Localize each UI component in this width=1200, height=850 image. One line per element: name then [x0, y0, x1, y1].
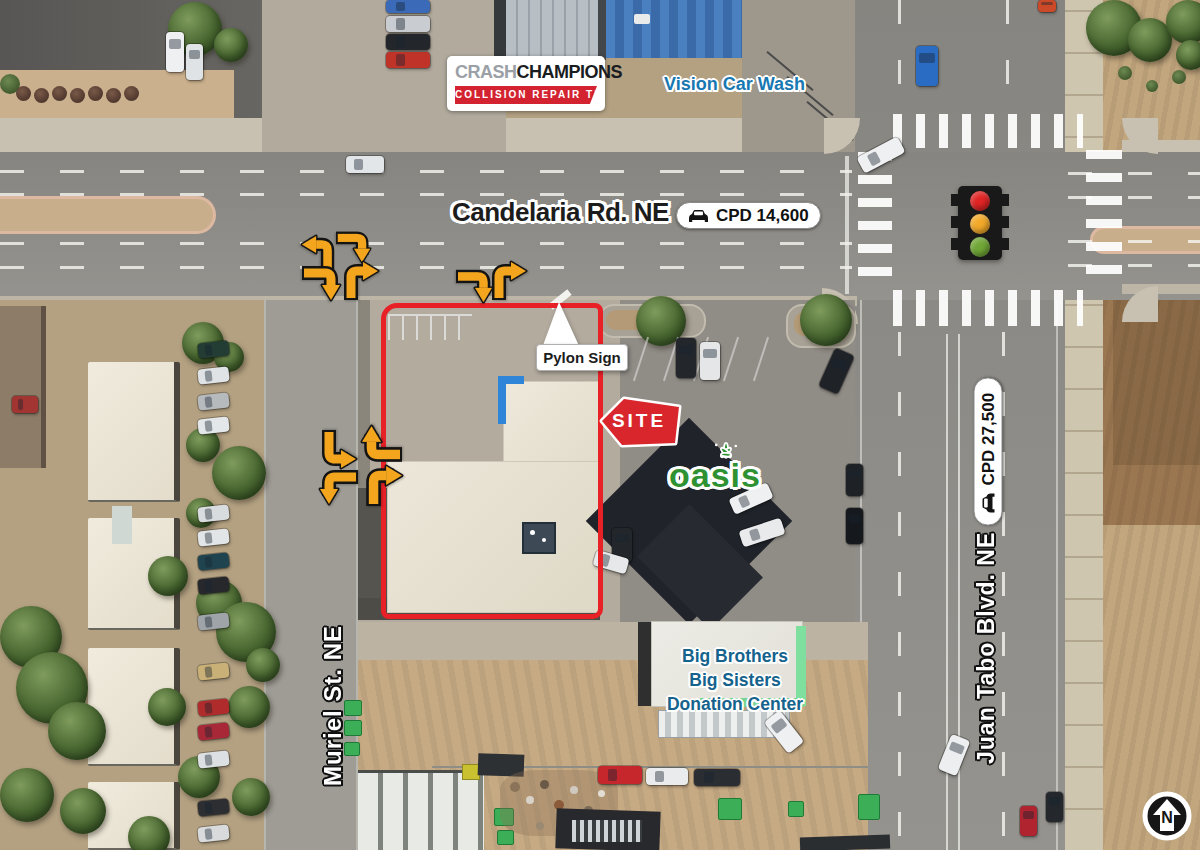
pylon-pointer: [540, 302, 584, 348]
traffic-light-green: [970, 237, 990, 257]
bush: [52, 86, 67, 101]
crosswalk-east: [1086, 150, 1122, 284]
bbbs-line3: Donation Center: [645, 692, 825, 716]
tree: [800, 294, 852, 346]
car: [197, 366, 229, 384]
turn-arrow-icon: [360, 424, 402, 466]
tree: [148, 688, 186, 726]
tree: [228, 686, 270, 728]
car: [197, 504, 229, 522]
crash-champions-wordmark: CRASHCHAMPIONS: [455, 62, 597, 83]
bush: [34, 88, 49, 103]
muriel-street-label: Muriel St. NE: [312, 614, 354, 796]
bbbs-line1: Big Brothers: [645, 644, 825, 668]
bush: [106, 88, 121, 103]
turn-arrow-icon: [336, 228, 372, 264]
car: [12, 396, 38, 413]
juan-tabo-label: Juan Tabo Blvd. NE: [962, 545, 1010, 750]
car: [676, 338, 696, 378]
candelaria-road-label: Candelaria Rd. NE: [452, 197, 669, 228]
car: [197, 416, 229, 434]
debris: [510, 782, 520, 792]
car: [386, 0, 430, 13]
lane-marking: [0, 170, 852, 173]
tree: [48, 702, 106, 760]
car: [197, 552, 229, 570]
blue-roof-building: [606, 0, 742, 58]
truck-dark: [800, 834, 890, 850]
candelaria-cpd-value: CPD 14,600: [716, 206, 809, 226]
trailer-panel: [572, 820, 642, 842]
traffic-light-tabs: [951, 194, 959, 206]
bush: [124, 86, 139, 101]
car: [197, 612, 229, 630]
traffic-light-icon: [958, 186, 1002, 260]
roof-vent: [634, 14, 650, 24]
bush: [1146, 80, 1158, 92]
car: [700, 342, 720, 380]
tree: [148, 556, 188, 596]
tree: [246, 648, 280, 682]
crash-word: CRASH: [455, 62, 517, 82]
edge-line: [1056, 300, 1058, 850]
car: [646, 768, 688, 785]
juan-tabo-cpd-value: CPD 27,500: [978, 393, 998, 486]
turn-arrow-icon: [340, 260, 380, 300]
bush: [1118, 66, 1132, 80]
car: [197, 576, 229, 594]
tree: [214, 28, 248, 62]
car: [386, 52, 430, 68]
car: [346, 156, 384, 173]
car: [186, 44, 203, 80]
lane-marking: [0, 266, 852, 269]
aerial-site-map: CRASHCHAMPIONS COLLISION REPAIR TEAM Vis…: [0, 0, 1200, 850]
lane-marking: [898, 0, 901, 112]
building-gap: [598, 0, 606, 60]
bush: [88, 86, 103, 101]
candelaria-traffic-count: CPD 14,600: [676, 202, 821, 229]
dumpster: [788, 801, 804, 817]
traffic-light-red: [970, 191, 990, 211]
car: [197, 698, 229, 716]
car-icon: [688, 209, 709, 223]
dumpster: [858, 794, 880, 820]
bush: [16, 86, 31, 101]
dumpster: [718, 798, 742, 820]
pylon-sign-label: Pylon Sign: [536, 344, 628, 371]
car: [197, 750, 229, 768]
crash-champions-logo: CRASHCHAMPIONS COLLISION REPAIR TEAM: [447, 56, 605, 111]
lane-marking: [0, 242, 852, 245]
car: [197, 392, 229, 410]
tree: [1176, 40, 1200, 70]
juan-tabo-traffic-count: CPD 27,500: [974, 378, 1003, 526]
car: [598, 766, 642, 784]
center-line: [958, 334, 960, 850]
car: [846, 508, 863, 544]
turn-arrow-icon: [318, 430, 358, 470]
car: [1046, 792, 1063, 822]
pylon-sign-text: Pylon Sign: [543, 349, 621, 366]
car: [916, 46, 938, 86]
lane-marking: [898, 332, 901, 850]
crosswalk-west: [858, 152, 892, 288]
juan-tabo-traffic-count-wrap: CPD 27,500: [974, 402, 1001, 526]
debris: [540, 780, 549, 789]
car: [694, 769, 740, 786]
tree: [212, 446, 266, 500]
car: [197, 340, 229, 358]
champions-word: CHAMPIONS: [517, 62, 623, 82]
apartment-building: [88, 362, 180, 502]
tree: [0, 768, 54, 822]
stop-line: [845, 156, 849, 294]
vision-car-wash-label: Vision Car Wash: [664, 74, 805, 95]
crosswalk-south: [893, 290, 1083, 326]
turn-arrow-icon: [488, 260, 528, 300]
debris: [598, 790, 605, 797]
lane-marking: [0, 193, 852, 196]
tree: [232, 778, 270, 816]
bush: [70, 88, 85, 103]
site-flag-text: SITE: [596, 410, 682, 432]
north-compass-icon: N: [1141, 790, 1193, 842]
car: [197, 528, 229, 546]
crash-tagline-ribbon: COLLISION REPAIR TEAM: [455, 86, 597, 104]
car: [197, 662, 229, 680]
oasis-logo-text: oasis: [650, 458, 780, 492]
car: [1038, 0, 1056, 12]
sidewalk-segment: [1122, 284, 1200, 294]
dumpster: [497, 830, 514, 845]
tree: [60, 788, 106, 834]
shed: [112, 506, 132, 544]
lane-marking: [1006, 0, 1009, 112]
car: [166, 32, 184, 72]
big-brothers-label: Big Brothers Big Sisters Donation Center: [645, 644, 825, 716]
debris: [570, 786, 578, 794]
tree: [128, 816, 170, 850]
car: [197, 722, 229, 740]
car: [386, 16, 430, 32]
turn-arrow-icon: [362, 464, 404, 506]
turn-arrow-icon: [302, 262, 342, 302]
brown-roof-building: [0, 306, 46, 468]
median-island: [0, 196, 216, 234]
curb-line: [264, 300, 266, 850]
car: [1020, 806, 1037, 836]
debris: [536, 822, 544, 830]
bbbs-line2: Big Sisters: [645, 668, 825, 692]
storage-units: [358, 770, 484, 850]
site-flag: SITE: [596, 394, 682, 448]
car: [846, 464, 863, 496]
north-letter: N: [1161, 809, 1173, 826]
turn-arrow-icon: [318, 466, 358, 506]
car: [386, 34, 430, 50]
debris: [526, 796, 534, 804]
car: [197, 798, 229, 816]
car-icon: [981, 493, 995, 514]
bush: [1172, 70, 1186, 84]
crosswalk-north: [893, 114, 1083, 148]
car: [197, 824, 229, 842]
traffic-light-amber: [970, 214, 990, 234]
